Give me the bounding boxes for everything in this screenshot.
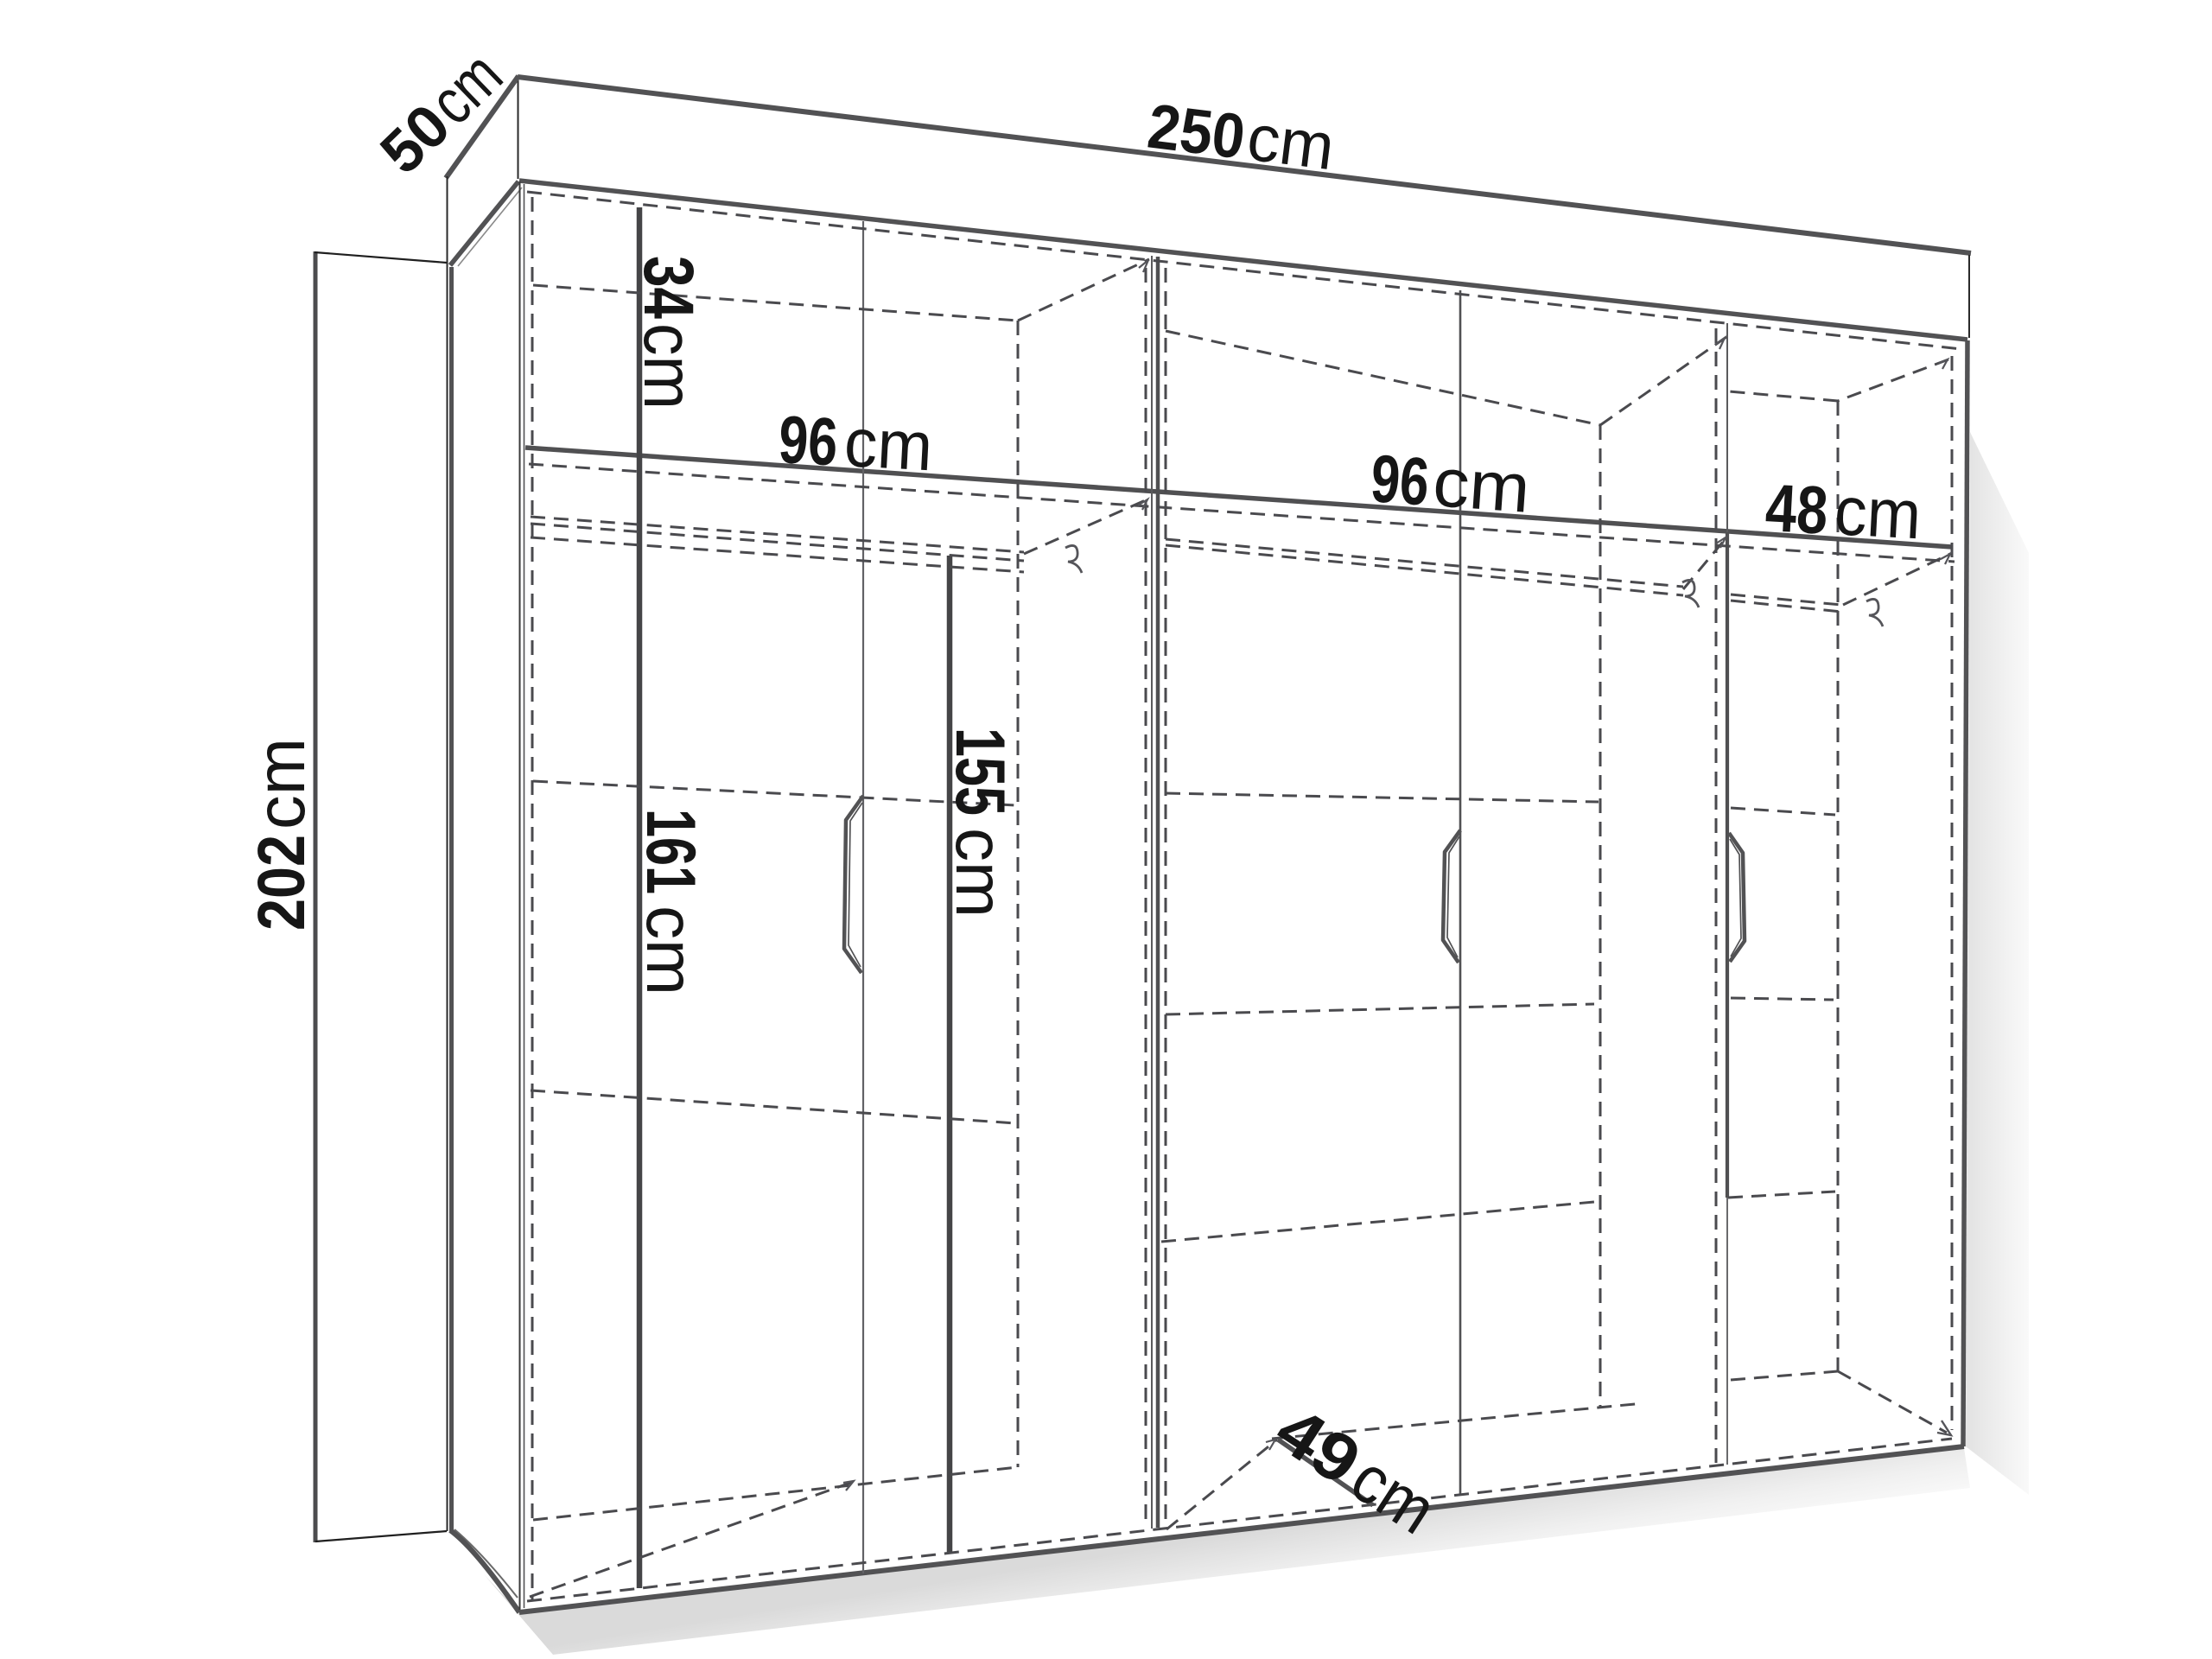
svg-text:250: 250 [1144, 91, 1249, 172]
svg-text:96: 96 [777, 401, 840, 480]
svg-text:34: 34 [629, 256, 708, 319]
svg-text:cm: cm [1243, 101, 1338, 185]
svg-text:155: 155 [941, 728, 1019, 816]
svg-text:cm: cm [1833, 472, 1923, 553]
svg-text:cm: cm [632, 906, 709, 995]
svg-text:cm: cm [1431, 443, 1533, 527]
svg-text:202: 202 [245, 835, 319, 931]
svg-text:cm: cm [842, 404, 935, 485]
svg-text:cm: cm [629, 323, 708, 410]
svg-text:cm: cm [942, 828, 1018, 918]
svg-text:cm: cm [242, 738, 319, 829]
svg-text:96: 96 [1369, 440, 1432, 519]
svg-text:161: 161 [632, 809, 709, 894]
svg-text:48: 48 [1764, 469, 1830, 549]
